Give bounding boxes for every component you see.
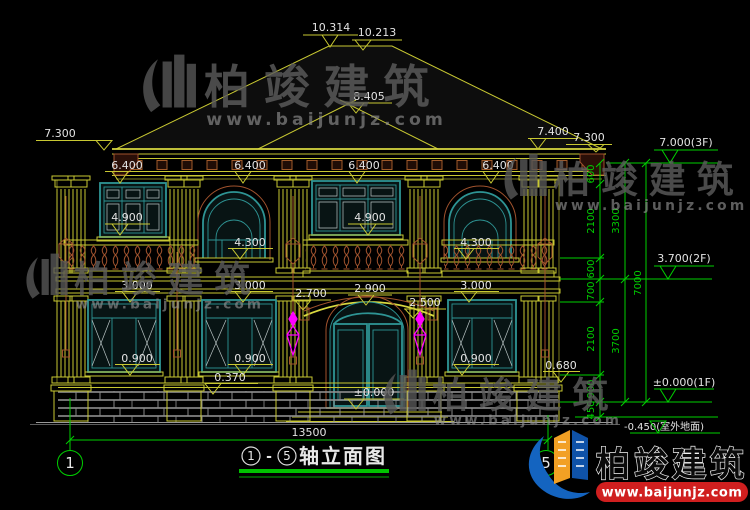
entrance-lamp-right bbox=[414, 312, 426, 355]
svg-text:2.700: 2.700 bbox=[295, 287, 327, 300]
svg-text:0.900: 0.900 bbox=[121, 352, 153, 365]
title-underline bbox=[239, 469, 389, 473]
drawing-title: 1 - 5 轴立面图 bbox=[239, 444, 389, 477]
axis-number-left: 1 bbox=[65, 454, 75, 472]
marker-ground: -0.450(室外地面) bbox=[624, 420, 720, 433]
svg-text:10.314: 10.314 bbox=[312, 21, 351, 34]
level-eave-left: 7.300 bbox=[36, 127, 112, 150]
hex-lantern-icon bbox=[286, 232, 300, 264]
window-2f-center bbox=[309, 181, 403, 239]
svg-text:3.700(2F): 3.700(2F) bbox=[657, 252, 710, 265]
svg-text:7.400: 7.400 bbox=[537, 125, 569, 138]
hex-lantern-icon bbox=[413, 232, 427, 264]
chain-700: 700 bbox=[586, 281, 597, 300]
title-separator: - bbox=[266, 449, 272, 465]
svg-text:-0.450(室外地面): -0.450(室外地面) bbox=[624, 420, 704, 433]
svg-text:4.900: 4.900 bbox=[354, 211, 386, 224]
svg-text:7.000(3F): 7.000(3F) bbox=[659, 136, 712, 149]
level-canopy-left: 2.700 bbox=[292, 287, 331, 310]
svg-text:0.900: 0.900 bbox=[234, 352, 266, 365]
brand-logo-name: 柏竣建筑 bbox=[596, 445, 748, 485]
svg-text:4.900: 4.900 bbox=[111, 211, 143, 224]
svg-text:7.300: 7.300 bbox=[44, 127, 76, 140]
svg-text:2.900: 2.900 bbox=[354, 282, 386, 295]
chain-7000: 7000 bbox=[633, 270, 644, 295]
level-1f-head-3: 3.000 bbox=[454, 279, 499, 302]
svg-text:4.300: 4.300 bbox=[234, 236, 266, 249]
svg-text:0.900: 0.900 bbox=[460, 352, 492, 365]
svg-text:10.213: 10.213 bbox=[358, 26, 397, 39]
elevation-drawing: 柏竣建筑 www.baijunjz.com bbox=[0, 0, 750, 510]
svg-text:6.400: 6.400 bbox=[348, 159, 380, 172]
brand-logo: 柏竣建筑 www.baijunjz.com bbox=[529, 430, 748, 502]
axis-bubble-left: 1 bbox=[58, 451, 83, 476]
title-axis-start: 1 bbox=[247, 449, 255, 463]
balustrade-center bbox=[303, 240, 408, 277]
svg-text:0.680: 0.680 bbox=[545, 359, 577, 372]
svg-text:7.300: 7.300 bbox=[573, 131, 605, 144]
brand-logo-site: www.baijunjz.com bbox=[602, 486, 743, 501]
chain-2100-b: 2100 bbox=[586, 326, 597, 351]
svg-text:±0.000(1F): ±0.000(1F) bbox=[653, 376, 716, 389]
balustrade-right bbox=[442, 240, 554, 277]
chain-3700: 3700 bbox=[611, 328, 622, 353]
marker-2f: 3.700(2F) bbox=[654, 252, 714, 279]
overall-width: 13500 bbox=[292, 426, 327, 439]
title-axis-end: 5 bbox=[283, 449, 291, 463]
svg-text:2.500: 2.500 bbox=[409, 296, 441, 309]
svg-text:4.300: 4.300 bbox=[460, 236, 492, 249]
level-canopy-right: 2.500 bbox=[404, 296, 446, 318]
level-ridge-a: 10.314 bbox=[303, 21, 358, 47]
chain-600-b: 600 bbox=[586, 259, 597, 278]
svg-text:3.000: 3.000 bbox=[460, 279, 492, 292]
watermark-left bbox=[26, 254, 264, 313]
svg-text:0.370: 0.370 bbox=[214, 371, 246, 384]
svg-text:6.400: 6.400 bbox=[234, 159, 266, 172]
marker-1f: ±0.000(1F) bbox=[653, 376, 716, 402]
svg-text:6.400: 6.400 bbox=[111, 159, 143, 172]
title-text: 轴立面图 bbox=[299, 444, 387, 468]
cad-viewport: 柏竣建筑 www.baijunjz.com bbox=[0, 0, 750, 510]
entrance-lamp-left bbox=[287, 312, 299, 355]
